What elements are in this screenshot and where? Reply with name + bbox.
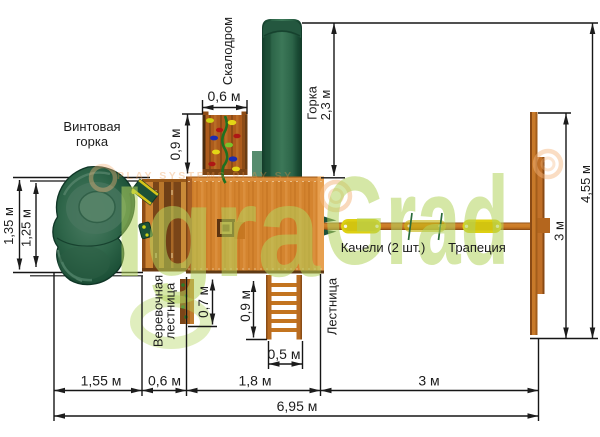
svg-text:Igra: Igra bbox=[114, 158, 321, 304]
svg-text:4,55 м: 4,55 м bbox=[578, 165, 593, 203]
svg-text:1,25 м: 1,25 м bbox=[19, 209, 34, 247]
svg-text:1,35 м: 1,35 м bbox=[1, 207, 16, 245]
svg-text:Лестница: Лестница bbox=[325, 277, 340, 335]
svg-text:0,6 м: 0,6 м bbox=[148, 373, 181, 389]
svg-text:Винтовая: Винтовая bbox=[63, 119, 120, 134]
svg-text:0,6 м: 0,6 м bbox=[208, 88, 241, 104]
svg-text:Скалодром: Скалодром bbox=[220, 17, 235, 85]
svg-text:Трапеция: Трапеция bbox=[448, 240, 506, 255]
svg-text:3 м: 3 м bbox=[552, 221, 567, 241]
svg-text:1,55 м: 1,55 м bbox=[81, 373, 122, 389]
svg-text:0,9 м: 0,9 м bbox=[168, 129, 183, 161]
svg-text:горка: горка bbox=[76, 134, 109, 149]
svg-text:лестница: лестница bbox=[163, 282, 178, 339]
svg-text:1,8 м: 1,8 м bbox=[239, 373, 272, 389]
svg-text:0,5 м: 0,5 м bbox=[268, 346, 301, 362]
svg-text:Качели (2 шт.): Качели (2 шт.) bbox=[341, 240, 426, 255]
svg-text:3 м: 3 м bbox=[418, 373, 439, 389]
svg-text:6,95 м: 6,95 м bbox=[277, 398, 318, 414]
svg-text:2,3 м: 2,3 м bbox=[318, 90, 333, 121]
svg-text:0,7 м: 0,7 м bbox=[196, 286, 211, 318]
svg-text:Grad: Grad bbox=[324, 152, 509, 291]
svg-text:0,9 м: 0,9 м bbox=[238, 290, 253, 322]
